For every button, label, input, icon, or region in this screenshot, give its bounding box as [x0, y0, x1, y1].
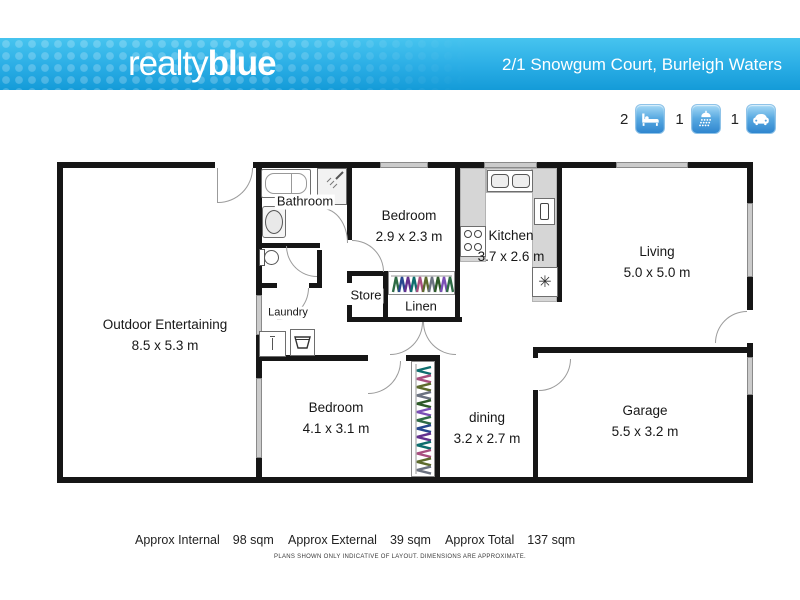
area-external-label: Approx External — [288, 533, 377, 547]
window — [256, 378, 262, 458]
wall — [256, 283, 277, 288]
wardrobe-top — [388, 271, 455, 295]
room-label: Outdoor Entertaining8.5 x 5.3 m — [103, 315, 228, 357]
door-leaf — [217, 168, 218, 203]
door-arc — [218, 168, 253, 203]
room-name: Bedroom — [303, 398, 370, 419]
small-room-label: Linen — [403, 300, 439, 315]
laundry-sink — [259, 331, 286, 357]
wall — [352, 317, 383, 322]
small-room-label: Laundry — [266, 307, 310, 320]
room-label: Bedroom4.1 x 3.1 m — [303, 398, 370, 440]
area-total-value: 137 sqm — [527, 533, 575, 547]
window — [380, 162, 428, 168]
wall — [317, 250, 322, 283]
door-arc — [368, 361, 401, 394]
wall — [57, 162, 215, 168]
property-address: 2/1 Snowgum Court, Burleigh Waters — [502, 55, 782, 75]
small-room-label: Store — [348, 289, 383, 304]
wall-oven — [534, 198, 555, 225]
basin — [262, 206, 286, 238]
wall — [347, 305, 352, 322]
room-name: dining — [454, 408, 521, 429]
car-count: 1 — [731, 111, 739, 128]
shower-icon — [691, 104, 721, 134]
logo-regular: realty — [128, 44, 208, 83]
wall — [309, 283, 322, 288]
header-bar: realtyblue 2/1 Snowgum Court, Burleigh W… — [0, 38, 800, 90]
logo: realtyblue — [128, 45, 276, 83]
room-dimensions: 8.5 x 5.3 m — [103, 336, 228, 357]
wall — [347, 271, 352, 283]
window — [616, 162, 688, 168]
fridge-symbol: ✳ — [533, 272, 557, 292]
room-dimensions: 5.0 x 5.0 m — [624, 263, 691, 284]
window — [747, 203, 753, 277]
area-external: Approx External39 sqm — [288, 533, 431, 547]
room-label: Kitchen3.7 x 2.6 m — [478, 226, 545, 268]
door-arc — [390, 322, 423, 355]
wall — [347, 168, 352, 240]
room-name: Living — [624, 242, 691, 263]
wall — [57, 162, 63, 483]
bath-count: 1 — [675, 111, 683, 128]
wall — [533, 347, 753, 353]
area-internal-value: 98 sqm — [233, 533, 274, 547]
wall — [533, 353, 538, 358]
area-internal: Approx Internal98 sqm — [135, 533, 274, 547]
window — [747, 357, 753, 395]
washing-machine — [290, 329, 315, 356]
fridge: ✳ — [532, 267, 558, 297]
room-name: Outdoor Entertaining — [103, 315, 228, 336]
room-dimensions: 5.5 x 3.2 m — [612, 422, 679, 443]
property-summary: 2 1 1 — [620, 104, 776, 134]
room-label: Living5.0 x 5.0 m — [624, 242, 691, 284]
bed-icon — [635, 104, 665, 134]
door-arc — [715, 311, 747, 343]
room-label: Bedroom2.9 x 2.3 m — [376, 206, 443, 248]
wall — [435, 355, 440, 477]
door-arc — [286, 246, 317, 277]
bed-count: 2 — [620, 111, 628, 128]
logo-bold: blue — [208, 44, 276, 83]
kitchen-sink — [487, 170, 533, 192]
room-dimensions: 2.9 x 2.3 m — [376, 227, 443, 248]
floorplan: ✳ Outdoor Entertaining8.5 x 5.3 mBedroom… — [57, 162, 753, 483]
room-name: Bedroom — [376, 206, 443, 227]
wall — [57, 477, 753, 483]
area-internal-label: Approx Internal — [135, 533, 220, 547]
wall — [533, 390, 538, 477]
wardrobe-bottom — [411, 361, 435, 477]
room-name: Garage — [612, 401, 679, 422]
room-name: Kitchen — [478, 226, 545, 247]
door-arc — [539, 359, 571, 391]
room-label: Garage5.5 x 3.2 m — [612, 401, 679, 443]
toilet — [259, 248, 281, 268]
disclaimer: PLANS SHOWN ONLY INDICATIVE OF LAYOUT. D… — [0, 554, 800, 560]
door-arc — [322, 208, 348, 243]
area-total: Approx Total137 sqm — [445, 533, 575, 547]
area-external-value: 39 sqm — [390, 533, 431, 547]
room-dimensions: 3.7 x 2.6 m — [478, 247, 545, 268]
room-dimensions: 4.1 x 3.1 m — [303, 419, 370, 440]
small-room-label: Bathroom — [275, 195, 335, 210]
room-dimensions: 3.2 x 2.7 m — [454, 429, 521, 450]
area-total-label: Approx Total — [445, 533, 514, 547]
door-arc — [423, 322, 456, 355]
room-label: dining3.2 x 2.7 m — [454, 408, 521, 450]
window — [256, 295, 262, 335]
car-icon — [746, 104, 776, 134]
